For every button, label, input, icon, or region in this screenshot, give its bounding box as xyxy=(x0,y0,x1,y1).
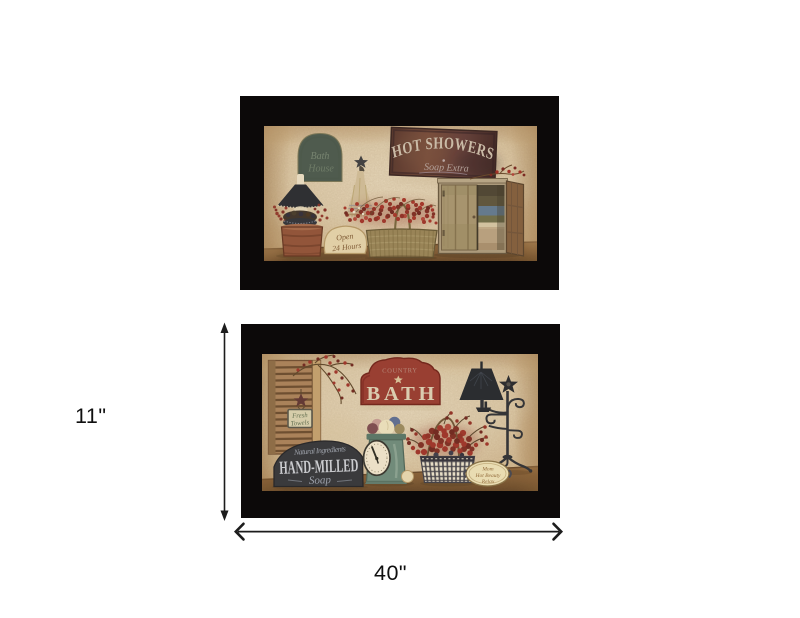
svg-text:11": 11" xyxy=(75,404,106,428)
svg-text:40": 40" xyxy=(374,561,407,585)
svg-text:Pam Britton: Pam Britton xyxy=(351,255,375,260)
svg-text:Mom: Mom xyxy=(481,467,493,473)
svg-text:Relax: Relax xyxy=(481,479,495,485)
